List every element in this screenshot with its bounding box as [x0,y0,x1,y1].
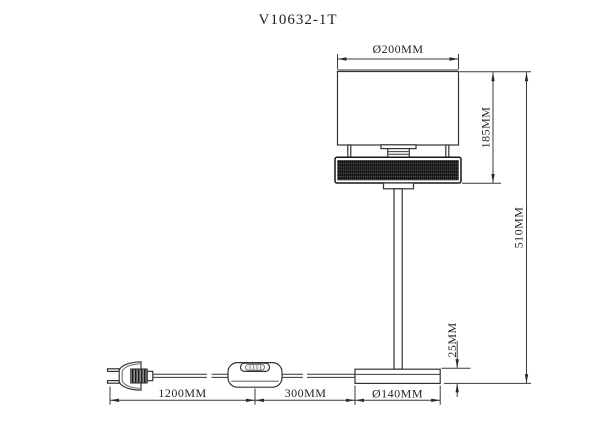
plug-pin-top [108,369,120,372]
drawing-title: V10632-1T [259,12,338,28]
mesh-band-texture [337,160,458,180]
technical-drawing-page: V10632-1T [0,0,600,424]
dim-label-cord-length: 1200MM [158,386,206,400]
lamp-base [355,369,440,383]
switch-rocker [246,364,265,370]
dim-label-switch-distance: 300MM [285,386,327,400]
plug-cord-boot [147,371,153,380]
shade-support-left [348,145,351,157]
dim-label-shade-height: 185MM [479,107,493,149]
lamp-dimension-drawing: V10632-1T [0,0,600,424]
shade-support-right [446,145,449,157]
dim-label-base-thickness: 25MM [445,322,459,357]
plug-pin-bottom [108,381,120,384]
lamp-socket [388,149,410,158]
lamp-shade [338,72,459,146]
dim-label-shade-diameter: Ø200MM [372,42,423,56]
dim-label-base-diameter: Ø140MM [372,387,423,401]
plug-strain-relief [131,369,147,383]
band-collar [384,183,414,189]
drawing-background [0,0,600,424]
dim-label-total-height: 510MM [512,207,526,249]
lamp-stem [394,189,402,369]
